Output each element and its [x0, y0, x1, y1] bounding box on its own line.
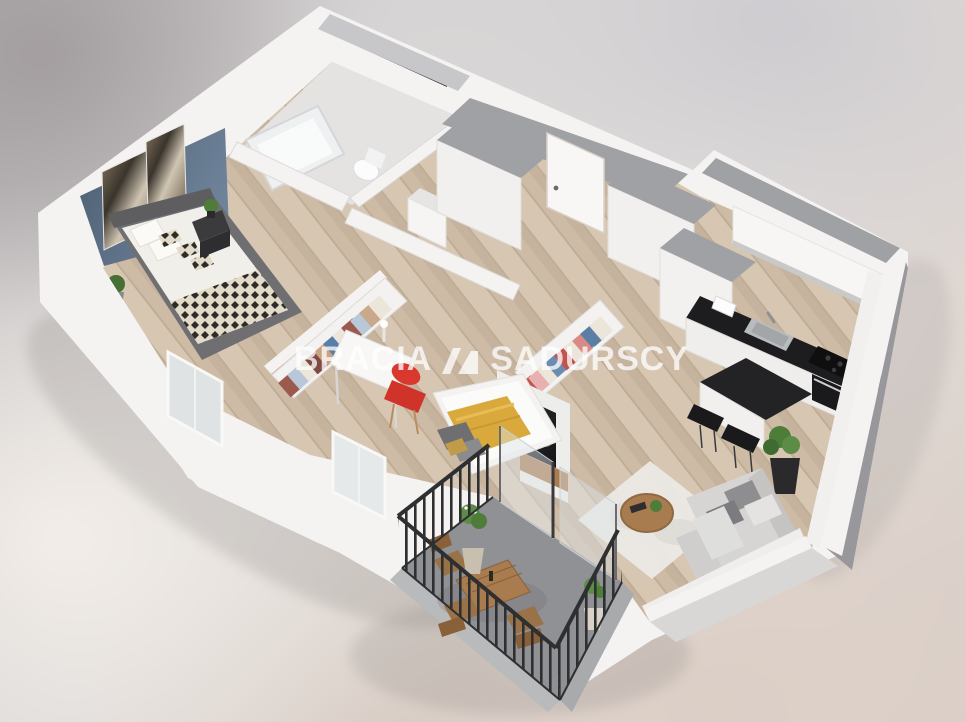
burner — [825, 355, 830, 360]
plant-foliage — [650, 500, 662, 512]
plant-pot — [207, 211, 215, 218]
burner — [832, 368, 836, 372]
watermark-brand-right: SADURSCY — [490, 340, 689, 379]
coffee-table — [621, 494, 673, 532]
plant-pot — [770, 458, 800, 494]
bottle — [489, 571, 493, 581]
watermark-brand-left: BRACIA — [294, 340, 432, 379]
floorplan-render: BRACIA SADURSCY — [0, 0, 965, 722]
watermark: BRACIA SADURSCY — [294, 340, 689, 379]
watermark-logo-icon — [440, 345, 482, 375]
plant-foliage — [204, 199, 218, 213]
table-lamp-head — [380, 320, 388, 328]
door-handle — [554, 186, 559, 191]
logo-shape — [458, 351, 478, 374]
burner — [837, 361, 842, 366]
plant-foliage — [763, 439, 779, 455]
plant-foliage — [471, 513, 487, 529]
plant-foliage — [782, 436, 800, 454]
table-top — [621, 494, 673, 532]
logo-shape — [442, 348, 461, 374]
